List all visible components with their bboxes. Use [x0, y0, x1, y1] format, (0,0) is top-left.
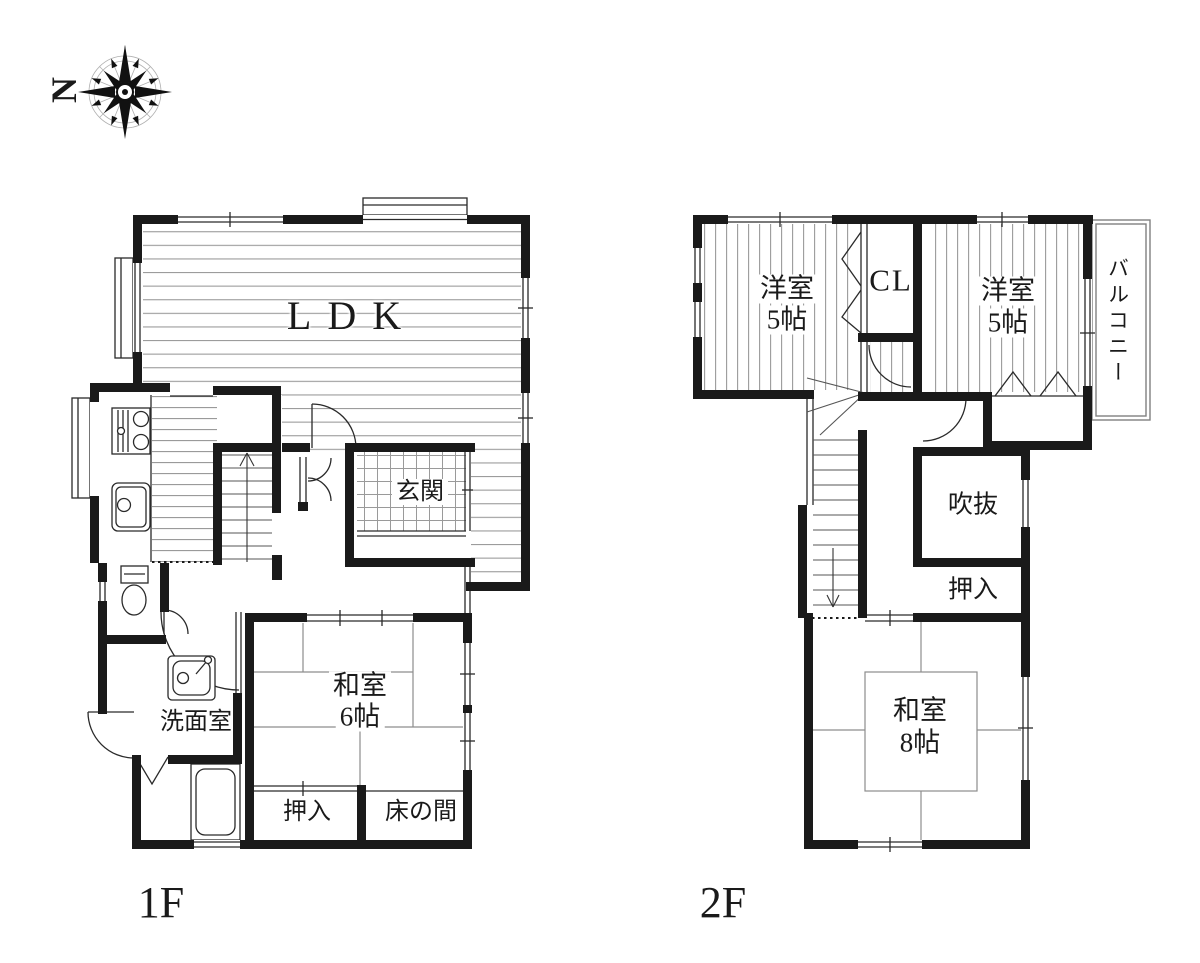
room-label-washitsu6-name: 和室 — [329, 672, 391, 701]
room-label-oshiire-2f: 押入 — [948, 578, 998, 603]
room-label-washitsu8-size: 8帖 — [896, 729, 945, 758]
bay-window-left — [115, 258, 133, 358]
room-label-yoshitsu-right-size: 5帖 — [984, 309, 1033, 338]
room-label-oshiire-1f: 押入 — [283, 800, 331, 824]
stairs-2f — [807, 378, 865, 607]
washbasin-icon — [168, 656, 215, 700]
window-washitsu8-right — [1018, 677, 1033, 780]
kitchen-sink-icon — [112, 483, 150, 531]
room-label-tokonoma: 床の間 — [385, 800, 457, 824]
room-label-ldk: LDK — [287, 296, 417, 336]
bay-window-kitchen — [72, 398, 90, 498]
hall-door — [923, 398, 966, 441]
room-label-genkan: 玄関 — [392, 479, 448, 505]
window-2f-left-1 — [693, 248, 702, 283]
bathtub-icon — [191, 764, 240, 840]
stove-icon — [112, 408, 150, 454]
window-washitsu-right-2 — [460, 713, 475, 770]
window-2f-left-2 — [693, 302, 702, 337]
floor-label-2f: 2F — [700, 881, 746, 925]
compass-rose — [78, 45, 172, 139]
room-label-fukinuke: 吹抜 — [948, 493, 998, 518]
floor-plan-graphics — [0, 0, 1200, 963]
exterior-service-door — [88, 712, 134, 758]
room-label-balcony: バルコニー — [1107, 257, 1128, 387]
bay-window-top — [363, 198, 467, 215]
room-label-yoshitsu-left-size: 5帖 — [763, 306, 812, 335]
room-label-senmenshitsu: 洗面室 — [160, 710, 232, 734]
floor-plan-page: N LDK 玄関 和室 6帖 押入 床の間 洗面室 1F 洋室 5帖 CL 洋室… — [0, 0, 1200, 963]
toilet-icon — [121, 566, 148, 615]
window-toilet — [98, 582, 107, 601]
window-bay-kitchen-gap — [90, 402, 99, 496]
room-label-yoshitsu-right-name: 洋室 — [977, 277, 1039, 306]
room-label-washitsu8-name: 和室 — [889, 697, 951, 726]
room-label-cl-top: CL — [869, 265, 913, 296]
window-washitsu-right-1 — [460, 643, 475, 705]
stairs-down-arrow — [827, 548, 839, 607]
toilet-door — [164, 610, 188, 634]
window-bay-left-gap — [133, 263, 142, 352]
compass-hub-dot — [122, 89, 128, 95]
vestibule-floor — [870, 342, 913, 392]
window-bay-top-gap — [363, 215, 467, 224]
hall-double-door — [300, 457, 331, 502]
stairs-1f — [222, 453, 272, 562]
floor-label-1f: 1F — [138, 881, 184, 925]
window-fukinuke — [1021, 480, 1030, 527]
room-label-washitsu6-size: 6帖 — [336, 703, 385, 732]
north-label: N — [46, 77, 82, 103]
room-label-yoshitsu-left-name: 洋室 — [756, 275, 818, 304]
kitchen-floor — [152, 395, 217, 562]
window-bath — [194, 840, 240, 849]
window-washitsu8-bottom — [858, 837, 922, 852]
